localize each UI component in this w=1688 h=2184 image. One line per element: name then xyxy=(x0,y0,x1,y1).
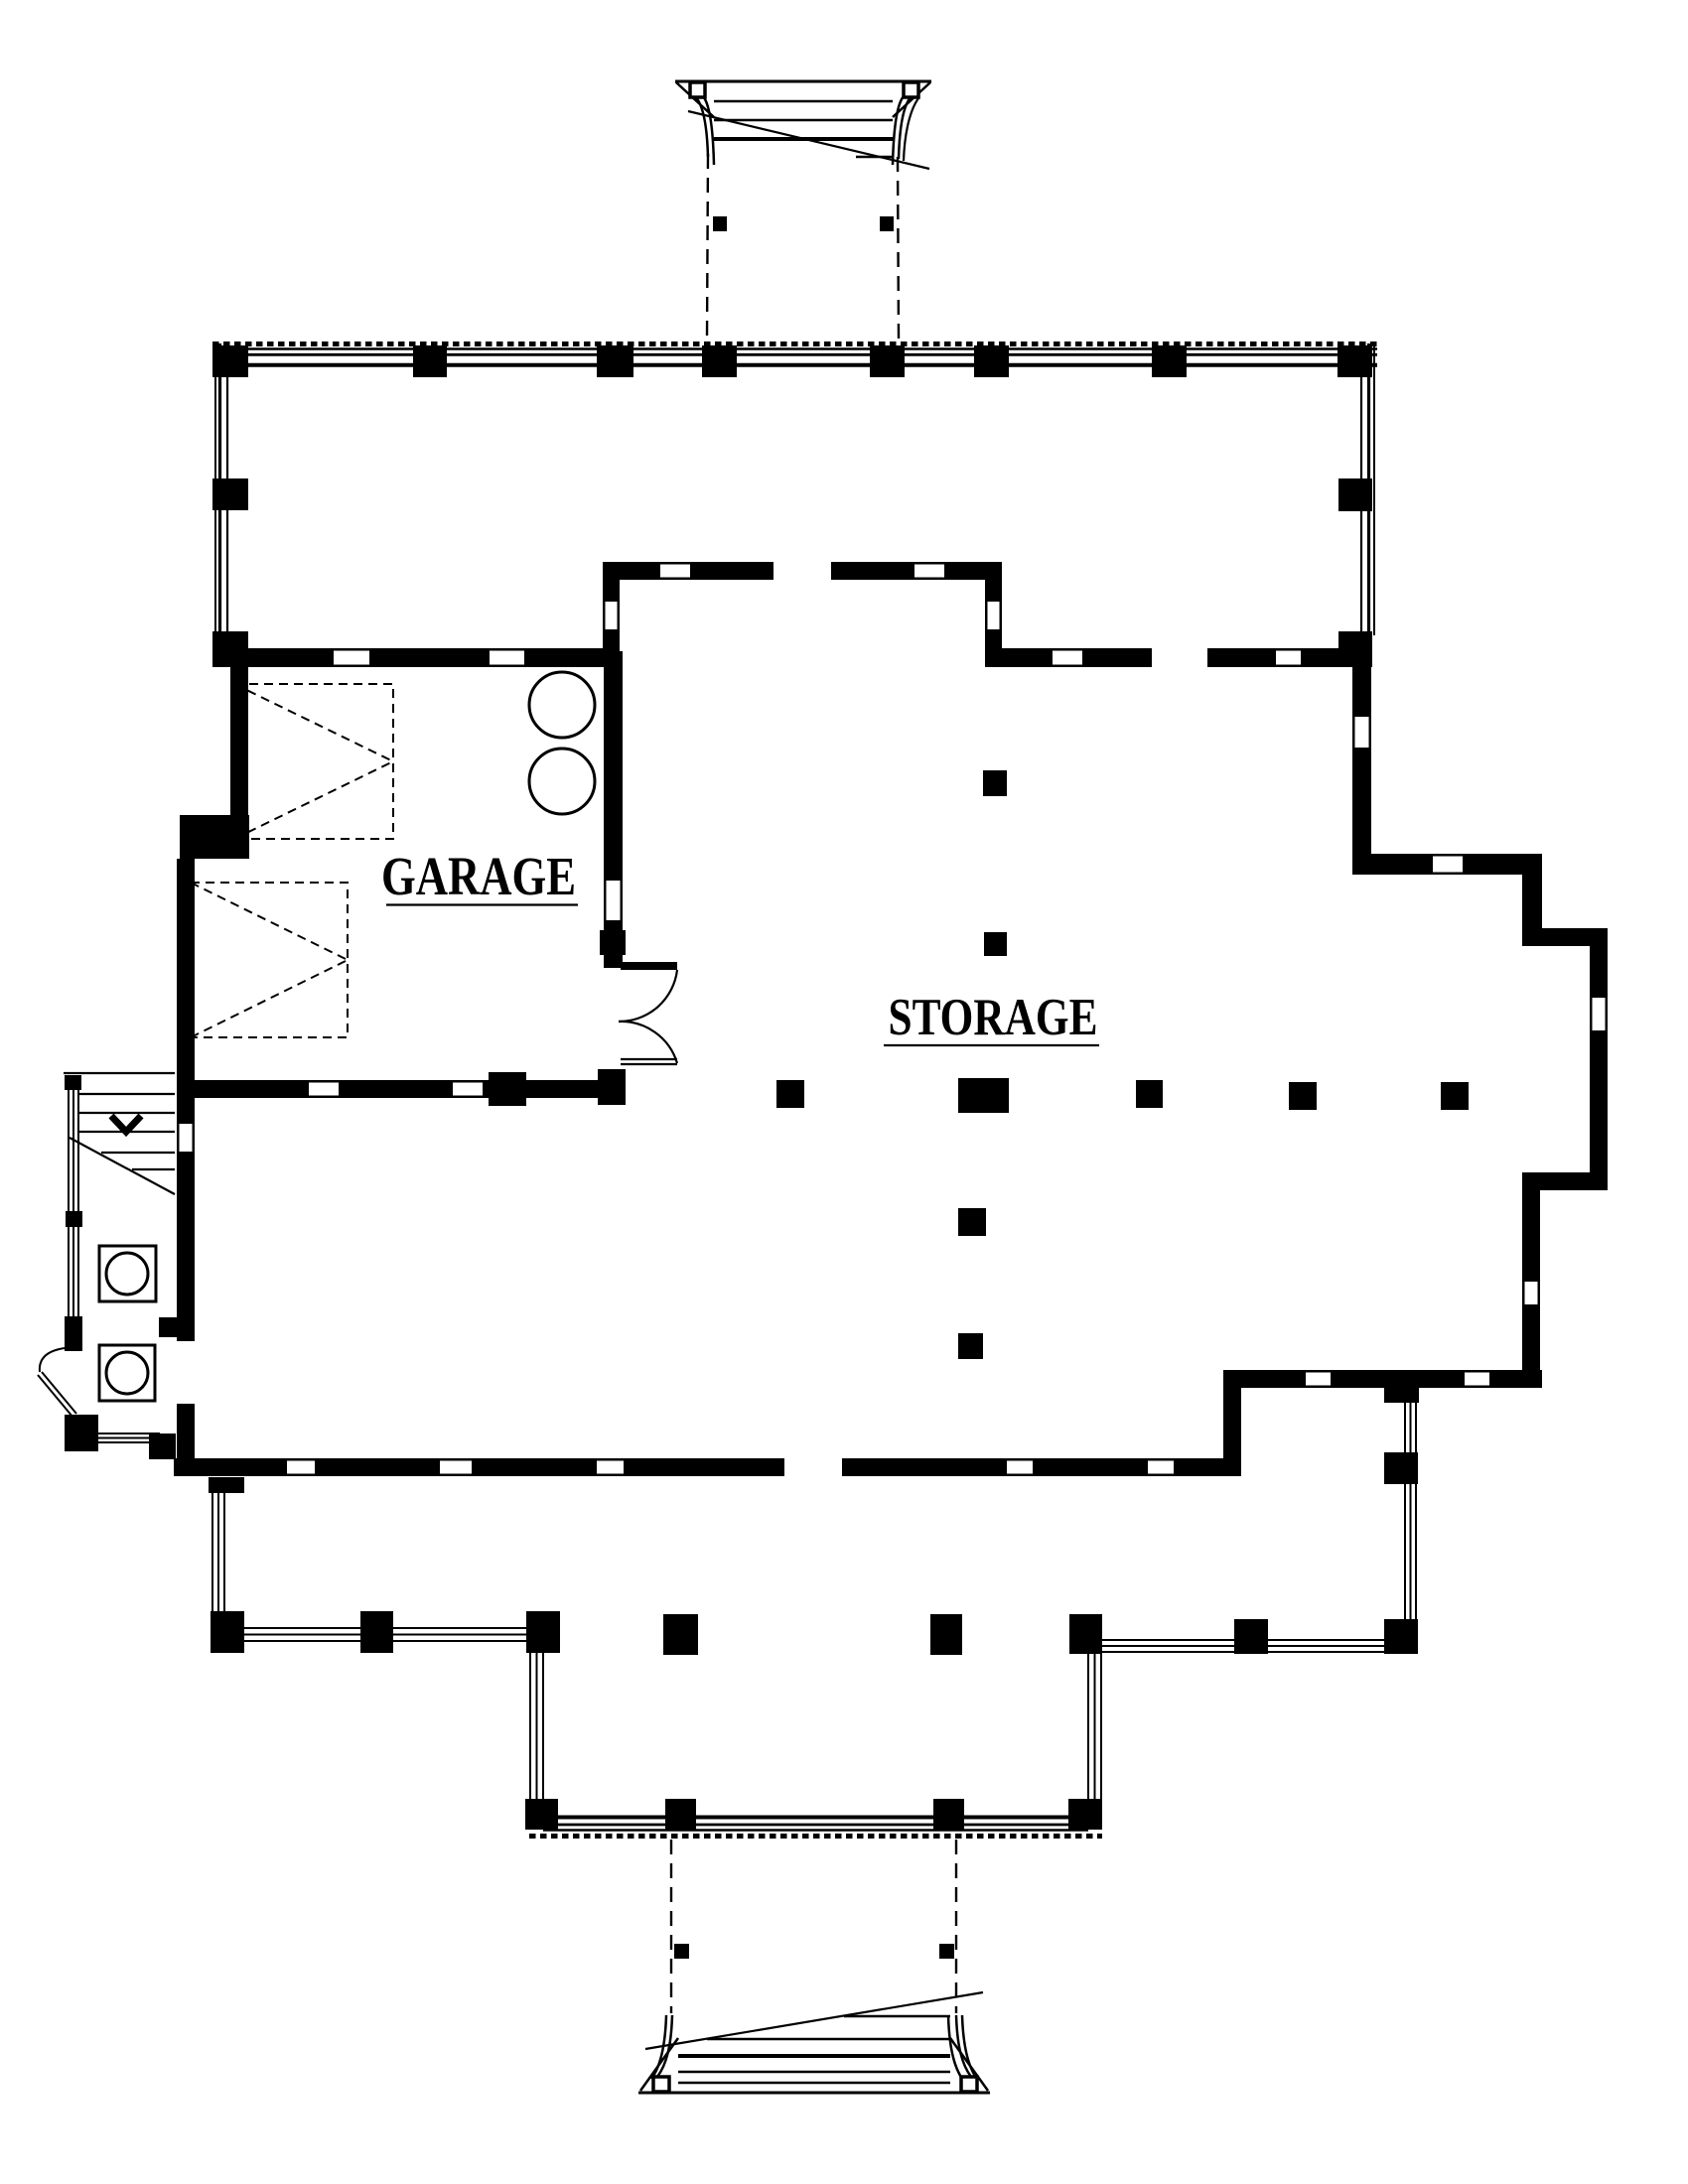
svg-text:STORAGE: STORAGE xyxy=(889,989,1098,1046)
svg-text:GARAGE: GARAGE xyxy=(381,846,576,906)
